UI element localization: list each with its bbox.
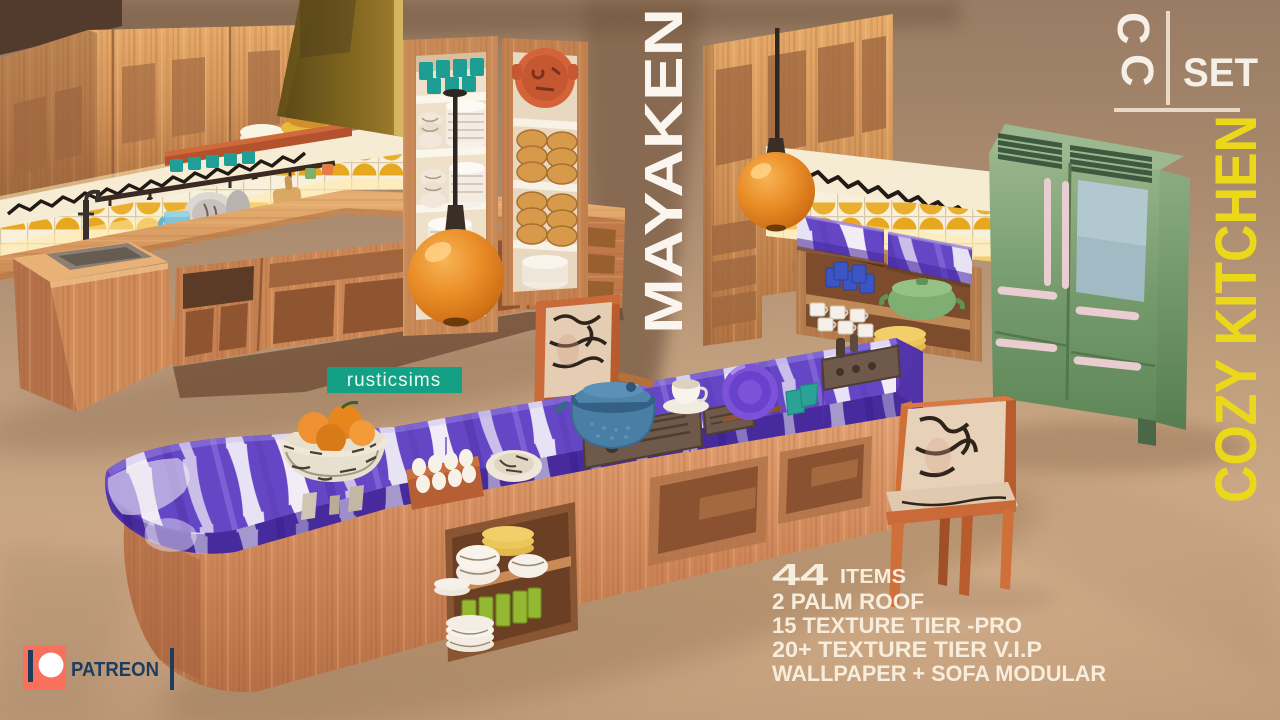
svg-text:C: C [1108, 12, 1159, 45]
svg-text:PATREON: PATREON [71, 659, 159, 681]
svg-text:C: C [1112, 54, 1163, 87]
svg-text:MAYAKEN: MAYAKEN [634, 8, 694, 334]
svg-text:20+ TEXTURE TIER V.I.P: 20+ TEXTURE TIER V.I.P [772, 637, 1042, 662]
svg-text:WALLPAPER + SOFA MODULAR: WALLPAPER + SOFA MODULAR [772, 661, 1106, 686]
svg-text:2 PALM ROOF: 2 PALM ROOF [772, 589, 924, 614]
svg-text:rusticsims: rusticsims [347, 370, 441, 391]
svg-text:ITEMS: ITEMS [840, 566, 906, 588]
svg-text:SET: SET [1183, 51, 1258, 95]
svg-text:44: 44 [772, 557, 829, 592]
svg-text:COZY KITCHEN: COZY KITCHEN [1204, 115, 1269, 503]
svg-text:15 TEXTURE TIER -PRO: 15 TEXTURE TIER -PRO [772, 613, 1022, 638]
